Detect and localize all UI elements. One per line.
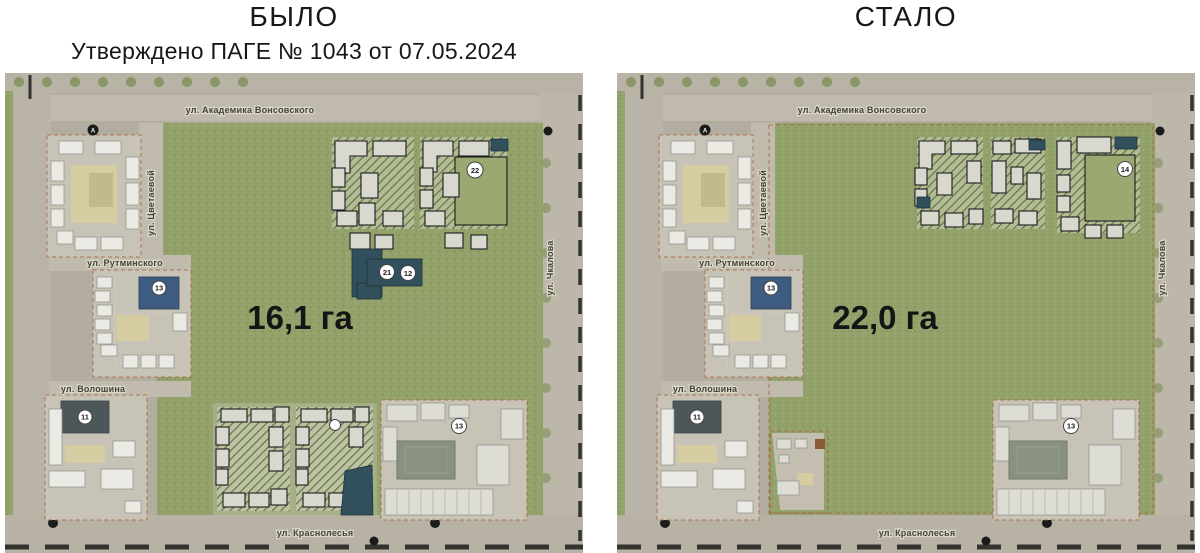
title-before: БЫЛО xyxy=(5,2,583,33)
header-after: СТАЛО xyxy=(617,0,1195,33)
map-before-svg: 22 21 12 13 11 13 А ул. Академика Вонсов… xyxy=(5,73,583,553)
marker-school-existing: 13 xyxy=(455,422,463,431)
quarter-midleft xyxy=(705,270,803,377)
street-label-right-vertical: ул. Чкалова xyxy=(1157,240,1167,296)
marker-mid-block: 13 xyxy=(767,284,775,293)
marker-mid-block: 13 xyxy=(155,284,163,293)
street-label-lower-left: ул. Волошина xyxy=(673,384,738,394)
street-label-top: ул. Академика Вонсовского xyxy=(186,105,315,115)
quarter-topleft xyxy=(47,135,141,257)
quarter-school xyxy=(381,400,527,520)
street-label-bottom: ул. Краснолесья xyxy=(879,528,956,538)
street-label-lower-left: ул. Волошина xyxy=(61,384,126,394)
roundabout-label: А xyxy=(91,129,96,135)
area-label-before: 16,1 га xyxy=(247,299,353,336)
marker-school-new-b: 12 xyxy=(404,269,412,278)
comparison-slide: БЫЛО Утверждено ПАГЕ № 1043 от 07.05.202… xyxy=(0,0,1200,553)
header-before: БЫЛО Утверждено ПАГЕ № 1043 от 07.05.202… xyxy=(5,0,583,65)
marker-school-existing: 13 xyxy=(1067,422,1075,431)
title-after: СТАЛО xyxy=(617,2,1195,33)
map-before: 22 21 12 13 11 13 А ул. Академика Вонсов… xyxy=(5,73,583,553)
quarter-topleft xyxy=(659,135,753,257)
marker-south-block: 11 xyxy=(693,413,701,422)
construction-marker xyxy=(815,439,825,449)
street-label-right-vertical: ул. Чкалова xyxy=(545,240,555,296)
map-after: 14 13 11 13 А ул. Академика Вонсовского … xyxy=(617,73,1195,553)
area-label-after: 22,0 га xyxy=(832,299,938,336)
subtitle-before: Утверждено ПАГЕ № 1043 от 07.05.2024 xyxy=(5,38,583,65)
street-label-left-vertical: ул. Цветаевой xyxy=(146,170,156,236)
street-label-mid-left: ул. Рутминского xyxy=(87,258,163,268)
map-after-svg: 14 13 11 13 А ул. Академика Вонсовского … xyxy=(617,73,1195,553)
quarter-school xyxy=(993,400,1139,520)
marker-plot-topright: 14 xyxy=(1121,165,1130,174)
street-label-left-vertical: ул. Цветаевой xyxy=(758,170,768,236)
planned-quarters-bottomcenter xyxy=(213,403,377,515)
street-label-bottom: ул. Краснолесья xyxy=(277,528,354,538)
quarter-midleft xyxy=(93,270,191,377)
roundabout-label: А xyxy=(703,129,708,135)
planned-quarters-topright xyxy=(915,137,1140,238)
quarter-bottomleft xyxy=(45,395,147,520)
marker-south-block: 11 xyxy=(81,413,89,422)
marker-school-new-a: 21 xyxy=(383,268,391,277)
street-label-mid-left: ул. Рутминского xyxy=(699,258,775,268)
quarter-bottomleft xyxy=(657,395,759,520)
street-label-top: ул. Академика Вонсовского xyxy=(798,105,927,115)
marker-plot-topright: 22 xyxy=(471,166,479,175)
